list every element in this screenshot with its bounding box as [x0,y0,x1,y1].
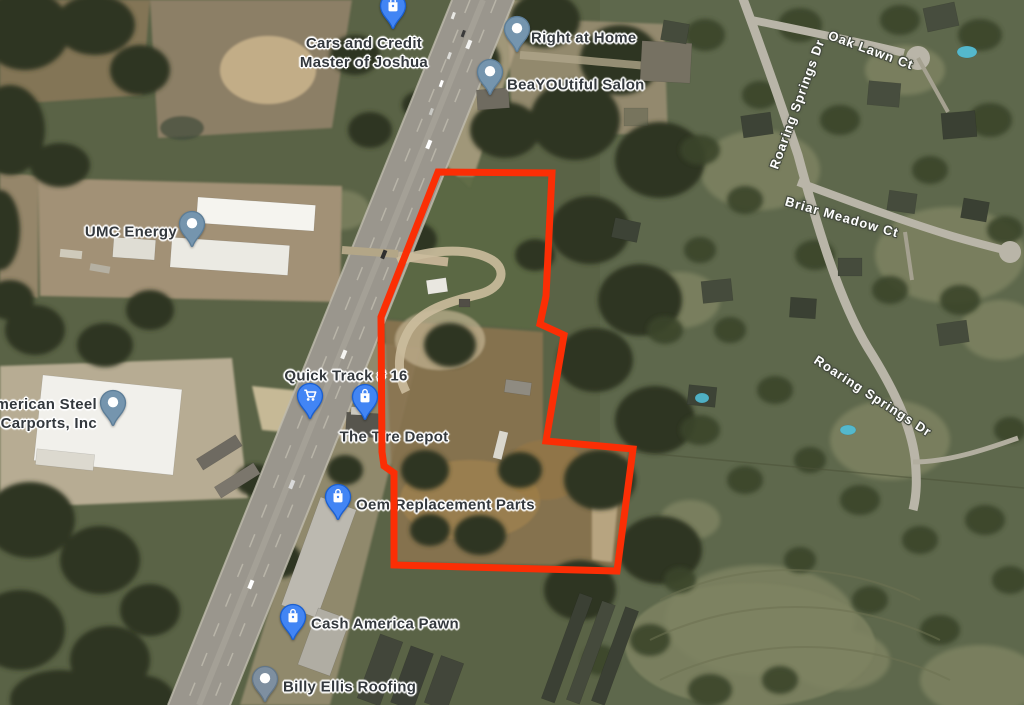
cash-america-pawn-label[interactable]: Cash America Pawn [311,615,459,634]
shopping-bag-icon [379,0,407,30]
satellite-map[interactable]: Cars and CreditMaster of JoshuaRight at … [0,0,1024,705]
the-tire-depot-label[interactable]: The Tire Depot [340,428,449,447]
label-line: UMC Energy [85,223,177,242]
the-tire-depot-pin[interactable] [351,383,379,421]
label-line: Cars and Credit [300,34,428,53]
umc-energy-pin[interactable] [178,210,206,248]
beayoutiful-salon-label[interactable]: BeaYOUtiful Salon [507,76,645,95]
right-at-home-pin[interactable] [503,15,531,53]
beayoutiful-salon-pin[interactable] [476,58,504,96]
place-circle-icon [476,58,504,96]
roads-group [168,0,1021,705]
label-line: Master of Joshua [300,53,428,72]
label-line: Oem Replacement Parts [356,496,535,515]
place-circle-icon [178,210,206,248]
oem-replacement-parts-pin[interactable] [324,483,352,521]
billy-ellis-roofing-pin[interactable] [251,665,279,703]
oem-replacement-parts-label[interactable]: Oem Replacement Parts [356,496,535,515]
label-line: BeaYOUtiful Salon [507,76,645,95]
billy-ellis-roofing-label[interactable]: Billy Ellis Roofing [283,678,416,697]
label-line: Quick Track # 16 [284,367,407,386]
satellite-imagery [0,0,1024,705]
american-steel-carports-inc-pin[interactable] [99,389,127,427]
umc-energy-label[interactable]: UMC Energy [85,223,177,242]
cars-and-credit-master-of-joshua-label[interactable]: Cars and CreditMaster of Joshua [300,34,428,72]
right-at-home-label[interactable]: Right at Home [531,29,637,48]
label-line: Cash America Pawn [311,615,459,634]
label-line: Right at Home [531,29,637,48]
roaring-springs-dr-north-road-label: Roaring Springs Dr [766,37,827,171]
label-line: The Tire Depot [340,428,449,447]
label-line: American Steel [0,395,97,414]
american-steel-carports-inc-label[interactable]: American SteelCarports, Inc [0,395,97,433]
buildings-group [33,2,989,705]
place-circle-muted-icon [251,665,279,703]
cash-america-pawn-pin[interactable] [279,603,307,641]
cars-and-credit-master-of-joshua-pin[interactable] [379,0,407,30]
shopping-bag-icon [324,483,352,521]
briar-meadow-ct-road-label: Briar Meadow Ct [783,194,900,241]
place-circle-icon [503,15,531,53]
label-line: Carports, Inc [0,414,97,433]
quick-track-16-label[interactable]: Quick Track # 16 [284,367,407,386]
quick-track-16-pin[interactable] [296,382,324,420]
shopping-bag-icon [279,603,307,641]
label-line: Billy Ellis Roofing [283,678,416,697]
shopping-cart-icon [296,382,324,420]
place-circle-icon [99,389,127,427]
roaring-springs-dr-east-road-label: Roaring Springs Dr [811,352,934,439]
oak-lawn-ct-road-label: Oak Lawn Ct [826,28,915,73]
shopping-bag-icon [351,383,379,421]
